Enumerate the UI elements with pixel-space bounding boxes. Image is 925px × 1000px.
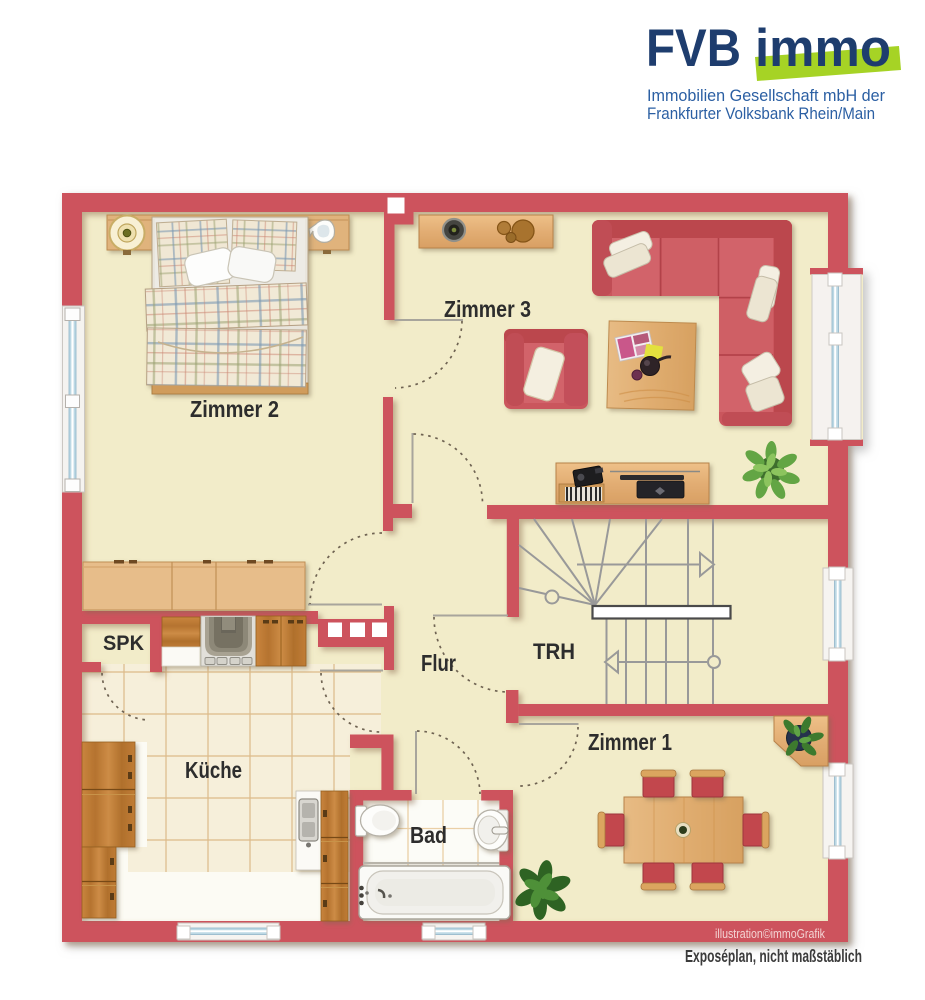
svg-text:immo: immo [755,19,891,78]
svg-text:Küche: Küche [185,757,242,783]
svg-text:Zimmer 2: Zimmer 2 [190,396,279,422]
svg-text:Flur: Flur [421,650,456,676]
svg-text:illustration©immoGrafik: illustration©immoGrafik [715,927,826,941]
svg-text:Zimmer 1: Zimmer 1 [588,729,672,755]
svg-text:Exposéplan, nicht maßstäblich: Exposéplan, nicht maßstäblich [685,946,862,966]
svg-text:TRH: TRH [533,639,575,664]
svg-text:FVB: FVB [646,19,741,78]
svg-text:Zimmer 3: Zimmer 3 [444,296,531,322]
svg-text:Frankfurter Volksbank Rhein/Ma: Frankfurter Volksbank Rhein/Main [647,104,875,123]
svg-text:Bad: Bad [410,822,447,848]
svg-text:SPK: SPK [103,632,144,655]
svg-text:Immobilien Gesellschaft mbH de: Immobilien Gesellschaft mbH der [647,86,885,105]
